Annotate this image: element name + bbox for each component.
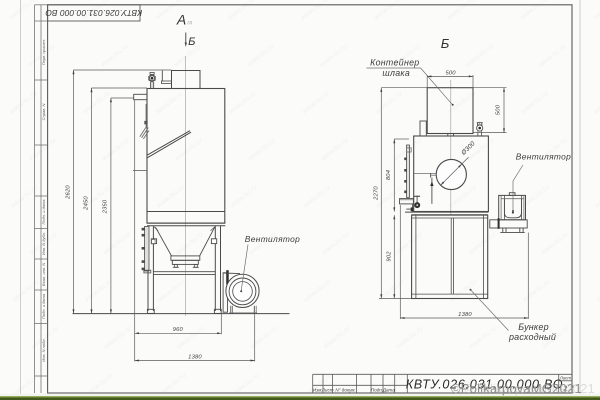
svg-text:902: 902 (387, 251, 393, 262)
svg-text:Подп. и дата: Подп. и дата (41, 199, 46, 225)
svg-text:Взам. инв. N: Взам. инв. N (41, 263, 46, 286)
svg-text:Лист: Лист (321, 387, 334, 392)
svg-text:500: 500 (445, 71, 456, 77)
svg-text:Подп.: Подп. (371, 387, 383, 392)
svg-text:Перв. примен.: Перв. примен. (41, 39, 46, 66)
svg-text:расходный: расходный (508, 332, 556, 342)
svg-text:Инв. N подл.: Инв. N подл. (41, 338, 46, 361)
svg-text:2270: 2270 (373, 186, 379, 201)
svg-text:Подп. и дата: Подп. и дата (41, 293, 46, 319)
svg-text:шлака: шлака (382, 68, 410, 78)
svg-text:Дата: Дата (382, 387, 396, 392)
svg-text:Контейнер: Контейнер (370, 57, 419, 67)
svg-text:Б: Б (441, 36, 450, 51)
svg-text:©PolikarpovaMG2021: ©PolikarpovaMG2021 (464, 381, 595, 396)
svg-text:КВТУ.026.031.00.000 ВО: КВТУ.026.031.00.000 ВО (45, 8, 142, 18)
svg-text:А: А (176, 11, 186, 27)
svg-text:1380: 1380 (188, 354, 202, 360)
svg-text:Инв. N дубл.: Инв. N дубл. (41, 232, 46, 255)
svg-text:Справ. N: Справ. N (41, 104, 46, 121)
svg-text:N° докум.: N° докум. (335, 387, 355, 392)
svg-text:2450: 2450 (84, 196, 90, 211)
svg-text:2350: 2350 (103, 199, 109, 214)
svg-text:Бункер: Бункер (518, 322, 549, 332)
svg-text:Б: Б (188, 36, 195, 48)
svg-text:960: 960 (173, 327, 184, 333)
svg-text:2620: 2620 (65, 185, 71, 200)
svg-text:Вентилятор: Вентилятор (245, 234, 300, 244)
svg-text:(1): (1) (188, 20, 194, 25)
svg-text:804: 804 (386, 170, 392, 180)
svg-text:1380: 1380 (458, 312, 472, 318)
svg-text:500: 500 (496, 104, 502, 115)
svg-text:Лист: Лист (559, 375, 572, 380)
svg-text:Вентилятор: Вентилятор (516, 152, 571, 162)
